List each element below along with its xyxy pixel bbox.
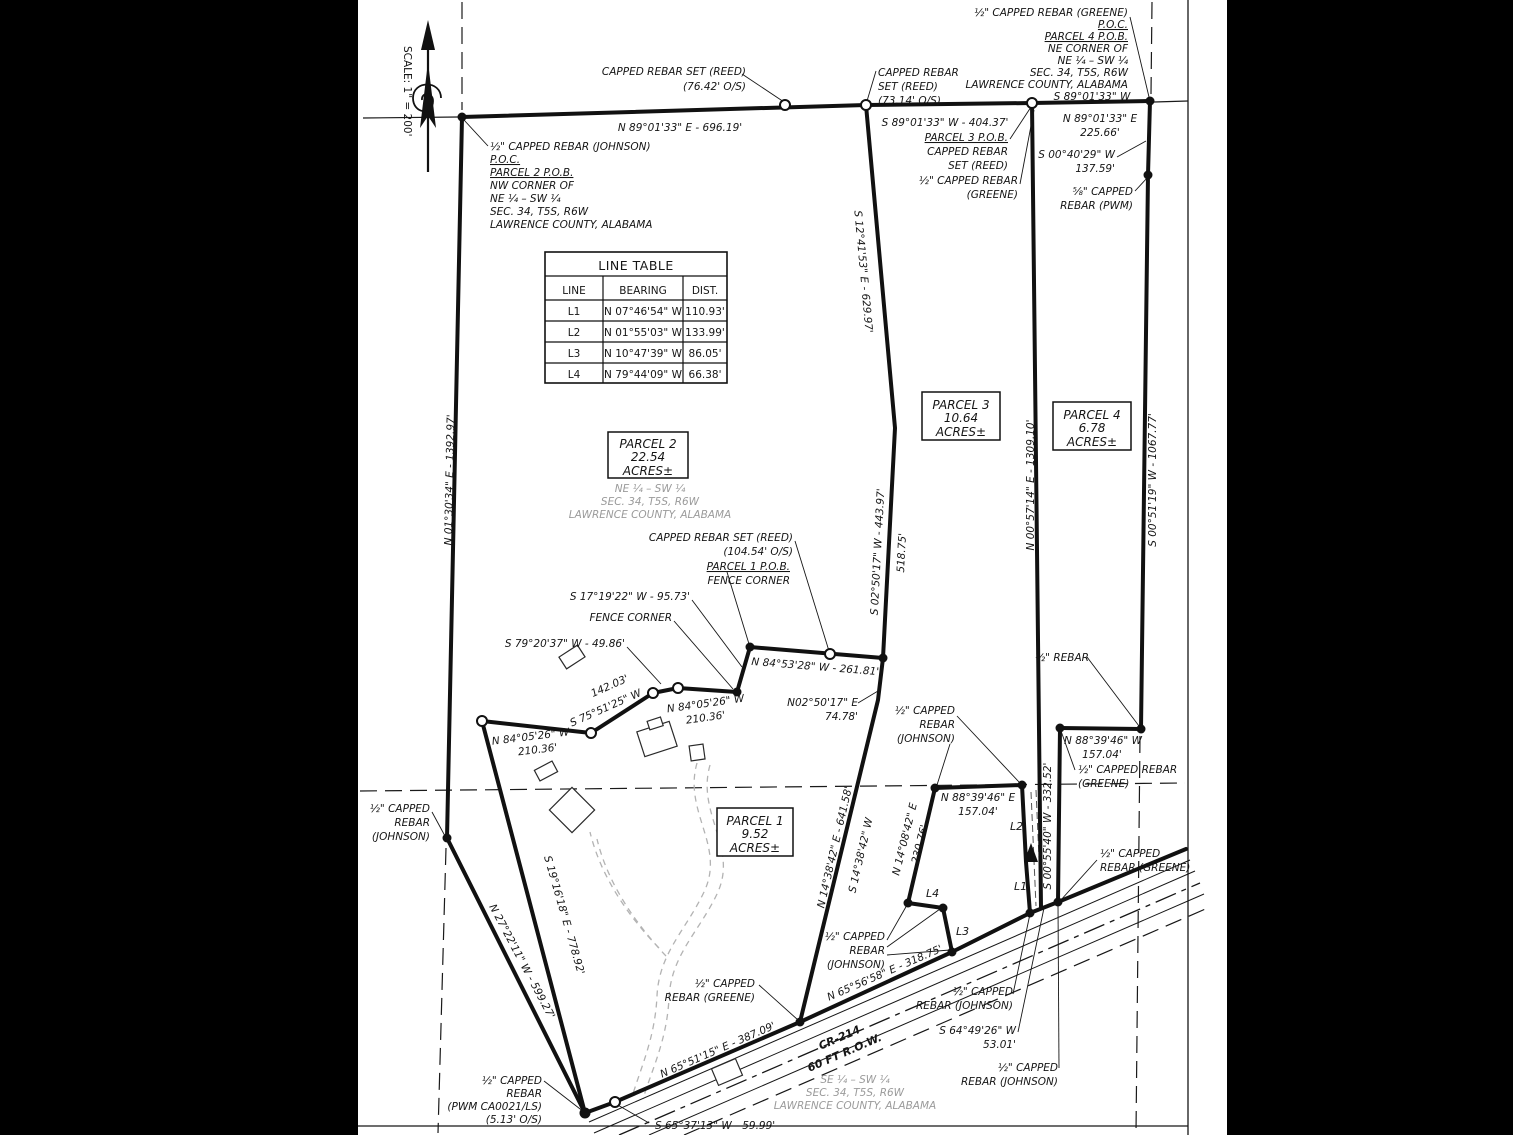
right-black-margin bbox=[1227, 0, 1513, 1135]
bearing-label: S 64°49'26" W bbox=[939, 1025, 1016, 1037]
corner-dot bbox=[904, 899, 913, 908]
monument-callout: REBAR bbox=[919, 719, 955, 731]
bearing-label: N 89°01'33" E bbox=[1063, 113, 1138, 125]
monument-callout: (5.13' O/S) bbox=[486, 1114, 542, 1126]
corner-dot bbox=[443, 834, 452, 843]
monument-callout: ½" CAPPED bbox=[482, 1075, 542, 1087]
corner-desc: LAWRENCE COUNTY, ALABAMA bbox=[966, 79, 1128, 91]
bearing-label: N 88°39'46" W bbox=[1064, 735, 1143, 747]
bearing-label: S 89°01'33" W - 404.37' bbox=[882, 117, 1009, 129]
line-table-header: BEARING bbox=[619, 285, 666, 297]
survey-plat-page: SCALE: 1" = 200' LINE TABLE LINE BEARING… bbox=[0, 0, 1513, 1135]
segment-label-l2: L2 bbox=[1010, 820, 1023, 833]
table-cell: L1 bbox=[568, 306, 581, 318]
parcel2-name: PARCEL 2 bbox=[619, 437, 676, 451]
pob-label: PARCEL 1 P.O.B. bbox=[707, 561, 790, 573]
parcel4-area: 6.78 bbox=[1079, 421, 1106, 435]
corner-dot bbox=[1054, 898, 1063, 907]
corner-desc: NW CORNER OF bbox=[490, 180, 575, 192]
corner-dot bbox=[1144, 171, 1153, 180]
scale-label: SCALE: 1" = 200' bbox=[401, 46, 413, 136]
ne-quarter-caption: NE ¼ – SW ¼ bbox=[615, 483, 686, 495]
corner-dot bbox=[746, 643, 755, 652]
monument-callout: REBAR bbox=[506, 1088, 542, 1100]
monument-callout: ½" CAPPED bbox=[1100, 848, 1160, 860]
corner-dot bbox=[948, 948, 957, 957]
distance-label: 225.66' bbox=[1080, 127, 1120, 139]
monument-callout: ½" CAPPED bbox=[953, 986, 1013, 998]
segment-label-l4: L4 bbox=[926, 887, 939, 900]
table-cell: L3 bbox=[568, 348, 581, 360]
ne-quarter-caption: LAWRENCE COUNTY, ALABAMA bbox=[569, 509, 731, 521]
pob-label: PARCEL 3 P.O.B. bbox=[925, 132, 1008, 144]
corner-desc: SEC. 34, T5S, R6W bbox=[1030, 67, 1129, 79]
fence-corner-label: FENCE CORNER bbox=[707, 575, 790, 587]
bearing-label: N02°50'17" E bbox=[787, 697, 858, 709]
monument-callout: REBAR (JOHNSON) bbox=[916, 1000, 1013, 1012]
table-cell: L2 bbox=[568, 327, 581, 339]
se-quarter-caption: SE ¼ – SW ¼ bbox=[820, 1074, 890, 1086]
corner-desc: NE CORNER OF bbox=[1048, 43, 1129, 55]
table-cell: N 79°44'09" W bbox=[604, 369, 683, 381]
boundary-parcel4-south bbox=[1060, 728, 1141, 729]
corner-dot bbox=[458, 113, 467, 122]
corner-dot bbox=[1026, 909, 1035, 918]
monument-callout: ½" CAPPED bbox=[825, 931, 885, 943]
bearing-label: S 65°37'13" W - 59.99' bbox=[655, 1120, 775, 1132]
parcel2-area: 22.54 bbox=[631, 450, 665, 464]
bearing-label: S 89°01'33" W bbox=[1054, 91, 1131, 103]
table-cell: N 10°47'39" W bbox=[604, 348, 683, 360]
parcel1-unit: ACRES± bbox=[729, 841, 780, 855]
monument-callout: CAPPED REBAR bbox=[927, 146, 1008, 158]
capped-rebar-set-marker bbox=[825, 649, 835, 659]
bearing-label: N 88°39'46" E bbox=[941, 792, 1016, 804]
fence-marker bbox=[648, 688, 658, 698]
table-cell: L4 bbox=[568, 369, 581, 381]
bearing-label: S 00°40'29" W bbox=[1038, 149, 1115, 161]
table-cell: N 01°55'03" W bbox=[604, 327, 683, 339]
monument-callout: REBAR bbox=[394, 817, 430, 829]
corner-desc: NE ¼ – SW ¼ bbox=[1058, 55, 1129, 67]
parcel3-unit: ACRES± bbox=[935, 425, 986, 439]
poc-label: P.O.C. bbox=[490, 154, 520, 166]
distance-label: 137.59' bbox=[1075, 163, 1115, 175]
segment-label-l3: L3 bbox=[956, 925, 969, 938]
table-cell: 133.99' bbox=[685, 327, 725, 339]
corner-dot bbox=[796, 1018, 805, 1027]
monument-callout: (GREENE) bbox=[1078, 778, 1129, 790]
monument-callout: CAPPED REBAR SET (REED) bbox=[602, 66, 746, 78]
monument-callout: ½" CAPPED bbox=[998, 1062, 1058, 1074]
parcel4-name: PARCEL 4 bbox=[1063, 408, 1120, 422]
fence-marker bbox=[586, 728, 596, 738]
table-cell: 86.05' bbox=[689, 348, 722, 360]
monument-callout: (JOHNSON) bbox=[897, 733, 955, 745]
left-black-margin bbox=[0, 0, 358, 1135]
monument-callout: REBAR (JOHNSON) bbox=[961, 1076, 1058, 1088]
bearing-label: S 00°55'40" W - 332.52' bbox=[1042, 763, 1054, 890]
building bbox=[689, 744, 705, 761]
bearing-label: S 79°20'37" W - 49.86' bbox=[505, 638, 625, 650]
distance-label: 157.04' bbox=[1082, 749, 1122, 761]
fence-marker bbox=[477, 716, 487, 726]
monument-callout: REBAR (GREENE) bbox=[665, 992, 755, 1004]
monument-callout: ½" CAPPED REBAR bbox=[919, 175, 1018, 187]
monument-callout: (GREENE) bbox=[967, 189, 1018, 201]
line-table-header: DIST. bbox=[692, 285, 718, 297]
pob-label: PARCEL 2 P.O.B. bbox=[490, 167, 573, 179]
parcel2-unit: ACRES± bbox=[622, 464, 673, 478]
bearing-label: N 00°57'14" E - 1309.10' bbox=[1025, 420, 1037, 551]
corner-dot bbox=[1056, 724, 1065, 733]
corner-dot bbox=[1137, 725, 1146, 734]
parcel1-area: 9.52 bbox=[742, 827, 769, 841]
parcel1-name: PARCEL 1 bbox=[726, 814, 783, 828]
monument-callout: ½" CAPPED REBAR (GREENE) bbox=[974, 7, 1128, 19]
corner-desc: LAWRENCE COUNTY, ALABAMA bbox=[490, 219, 652, 231]
monument-callout: ½" REBAR bbox=[1035, 652, 1089, 664]
corner-dot bbox=[1146, 97, 1155, 106]
corner-dot bbox=[939, 904, 948, 913]
se-quarter-caption: SEC. 34, T5S, R6W bbox=[806, 1087, 905, 1099]
monument-callout: CAPPED REBAR bbox=[878, 67, 959, 79]
bearing-label: N 89°01'33" E - 696.19' bbox=[618, 122, 742, 134]
boundary-parcel4-west-stub bbox=[1058, 728, 1060, 902]
monument-callout: CAPPED REBAR SET (REED) bbox=[649, 532, 793, 544]
monument-callout: ½" CAPPED bbox=[895, 705, 955, 717]
se-quarter-caption: LAWRENCE COUNTY, ALABAMA bbox=[774, 1100, 936, 1112]
monument-callout: (JOHNSON) bbox=[827, 959, 885, 971]
distance-label: 53.01' bbox=[983, 1039, 1016, 1051]
table-cell: N 07°46'54" W bbox=[604, 306, 683, 318]
fence-corner-label: FENCE CORNER bbox=[589, 612, 672, 624]
monument-callout: (73.14' O/S) bbox=[878, 95, 941, 107]
monument-callout: (76.42' O/S) bbox=[683, 81, 746, 93]
bearing-label: S 00°51'19" W - 1067.77' bbox=[1147, 413, 1159, 547]
bearing-label: S 17°19'22" W - 95.73' bbox=[570, 591, 690, 603]
distance-label: 518.75' bbox=[895, 533, 909, 573]
capped-rebar-set-marker bbox=[1027, 98, 1037, 108]
fence-marker bbox=[673, 683, 683, 693]
monument-callout: ½" CAPPED bbox=[695, 978, 755, 990]
corner-dot bbox=[580, 1108, 591, 1119]
segment-label-l1: L1 bbox=[1014, 880, 1027, 893]
parcel3-name: PARCEL 3 bbox=[932, 398, 989, 412]
capped-rebar-set-marker bbox=[780, 100, 790, 110]
monument-callout: (JOHNSON) bbox=[372, 831, 430, 843]
monument-callout: REBAR bbox=[849, 945, 885, 957]
corner-desc: SEC. 34, T5S, R6W bbox=[490, 206, 589, 218]
distance-label: 74.78' bbox=[825, 711, 858, 723]
monument-callout: ½" CAPPED REBAR bbox=[1078, 764, 1177, 776]
line-table: LINE TABLE LINE BEARING DIST. L1 N 07°46… bbox=[545, 252, 727, 383]
corner-dot bbox=[1018, 781, 1027, 790]
corner-dot bbox=[931, 784, 940, 793]
capped-rebar-set-marker bbox=[861, 100, 871, 110]
parcel3-area: 10.64 bbox=[944, 411, 978, 425]
monument-callout: SET (REED) bbox=[878, 81, 938, 93]
line-table-header: LINE bbox=[562, 285, 585, 297]
pob-label: PARCEL 4 P.O.B. bbox=[1045, 31, 1128, 43]
distance-label: 157.04' bbox=[958, 806, 998, 818]
line-table-title: LINE TABLE bbox=[598, 258, 674, 273]
road-monument-marker bbox=[610, 1097, 620, 1107]
parcel4-unit: ACRES± bbox=[1066, 435, 1117, 449]
table-cell: 110.93' bbox=[685, 306, 725, 318]
monument-callout: (PWM CA0021/LS) bbox=[447, 1101, 542, 1113]
monument-callout: ½" CAPPED bbox=[370, 803, 430, 815]
monument-callout: ⅝" CAPPED bbox=[1073, 186, 1133, 198]
poc-label: P.O.C. bbox=[1098, 19, 1128, 31]
monument-callout: SET (REED) bbox=[948, 160, 1008, 172]
corner-dot bbox=[879, 654, 888, 663]
corner-desc: NE ¼ – SW ¼ bbox=[490, 193, 561, 205]
monument-callout: REBAR (PWM) bbox=[1060, 200, 1133, 212]
monument-callout: (104.54' O/S) bbox=[723, 546, 793, 558]
table-cell: 66.38' bbox=[689, 369, 722, 381]
monument-callout: ½" CAPPED REBAR (JOHNSON) bbox=[490, 141, 651, 153]
monument-callout: REBAR (GREENE) bbox=[1100, 862, 1190, 874]
plat-drawing: SCALE: 1" = 200' LINE TABLE LINE BEARING… bbox=[0, 0, 1513, 1135]
ne-quarter-caption: SEC. 34, T5S, R6W bbox=[601, 496, 700, 508]
